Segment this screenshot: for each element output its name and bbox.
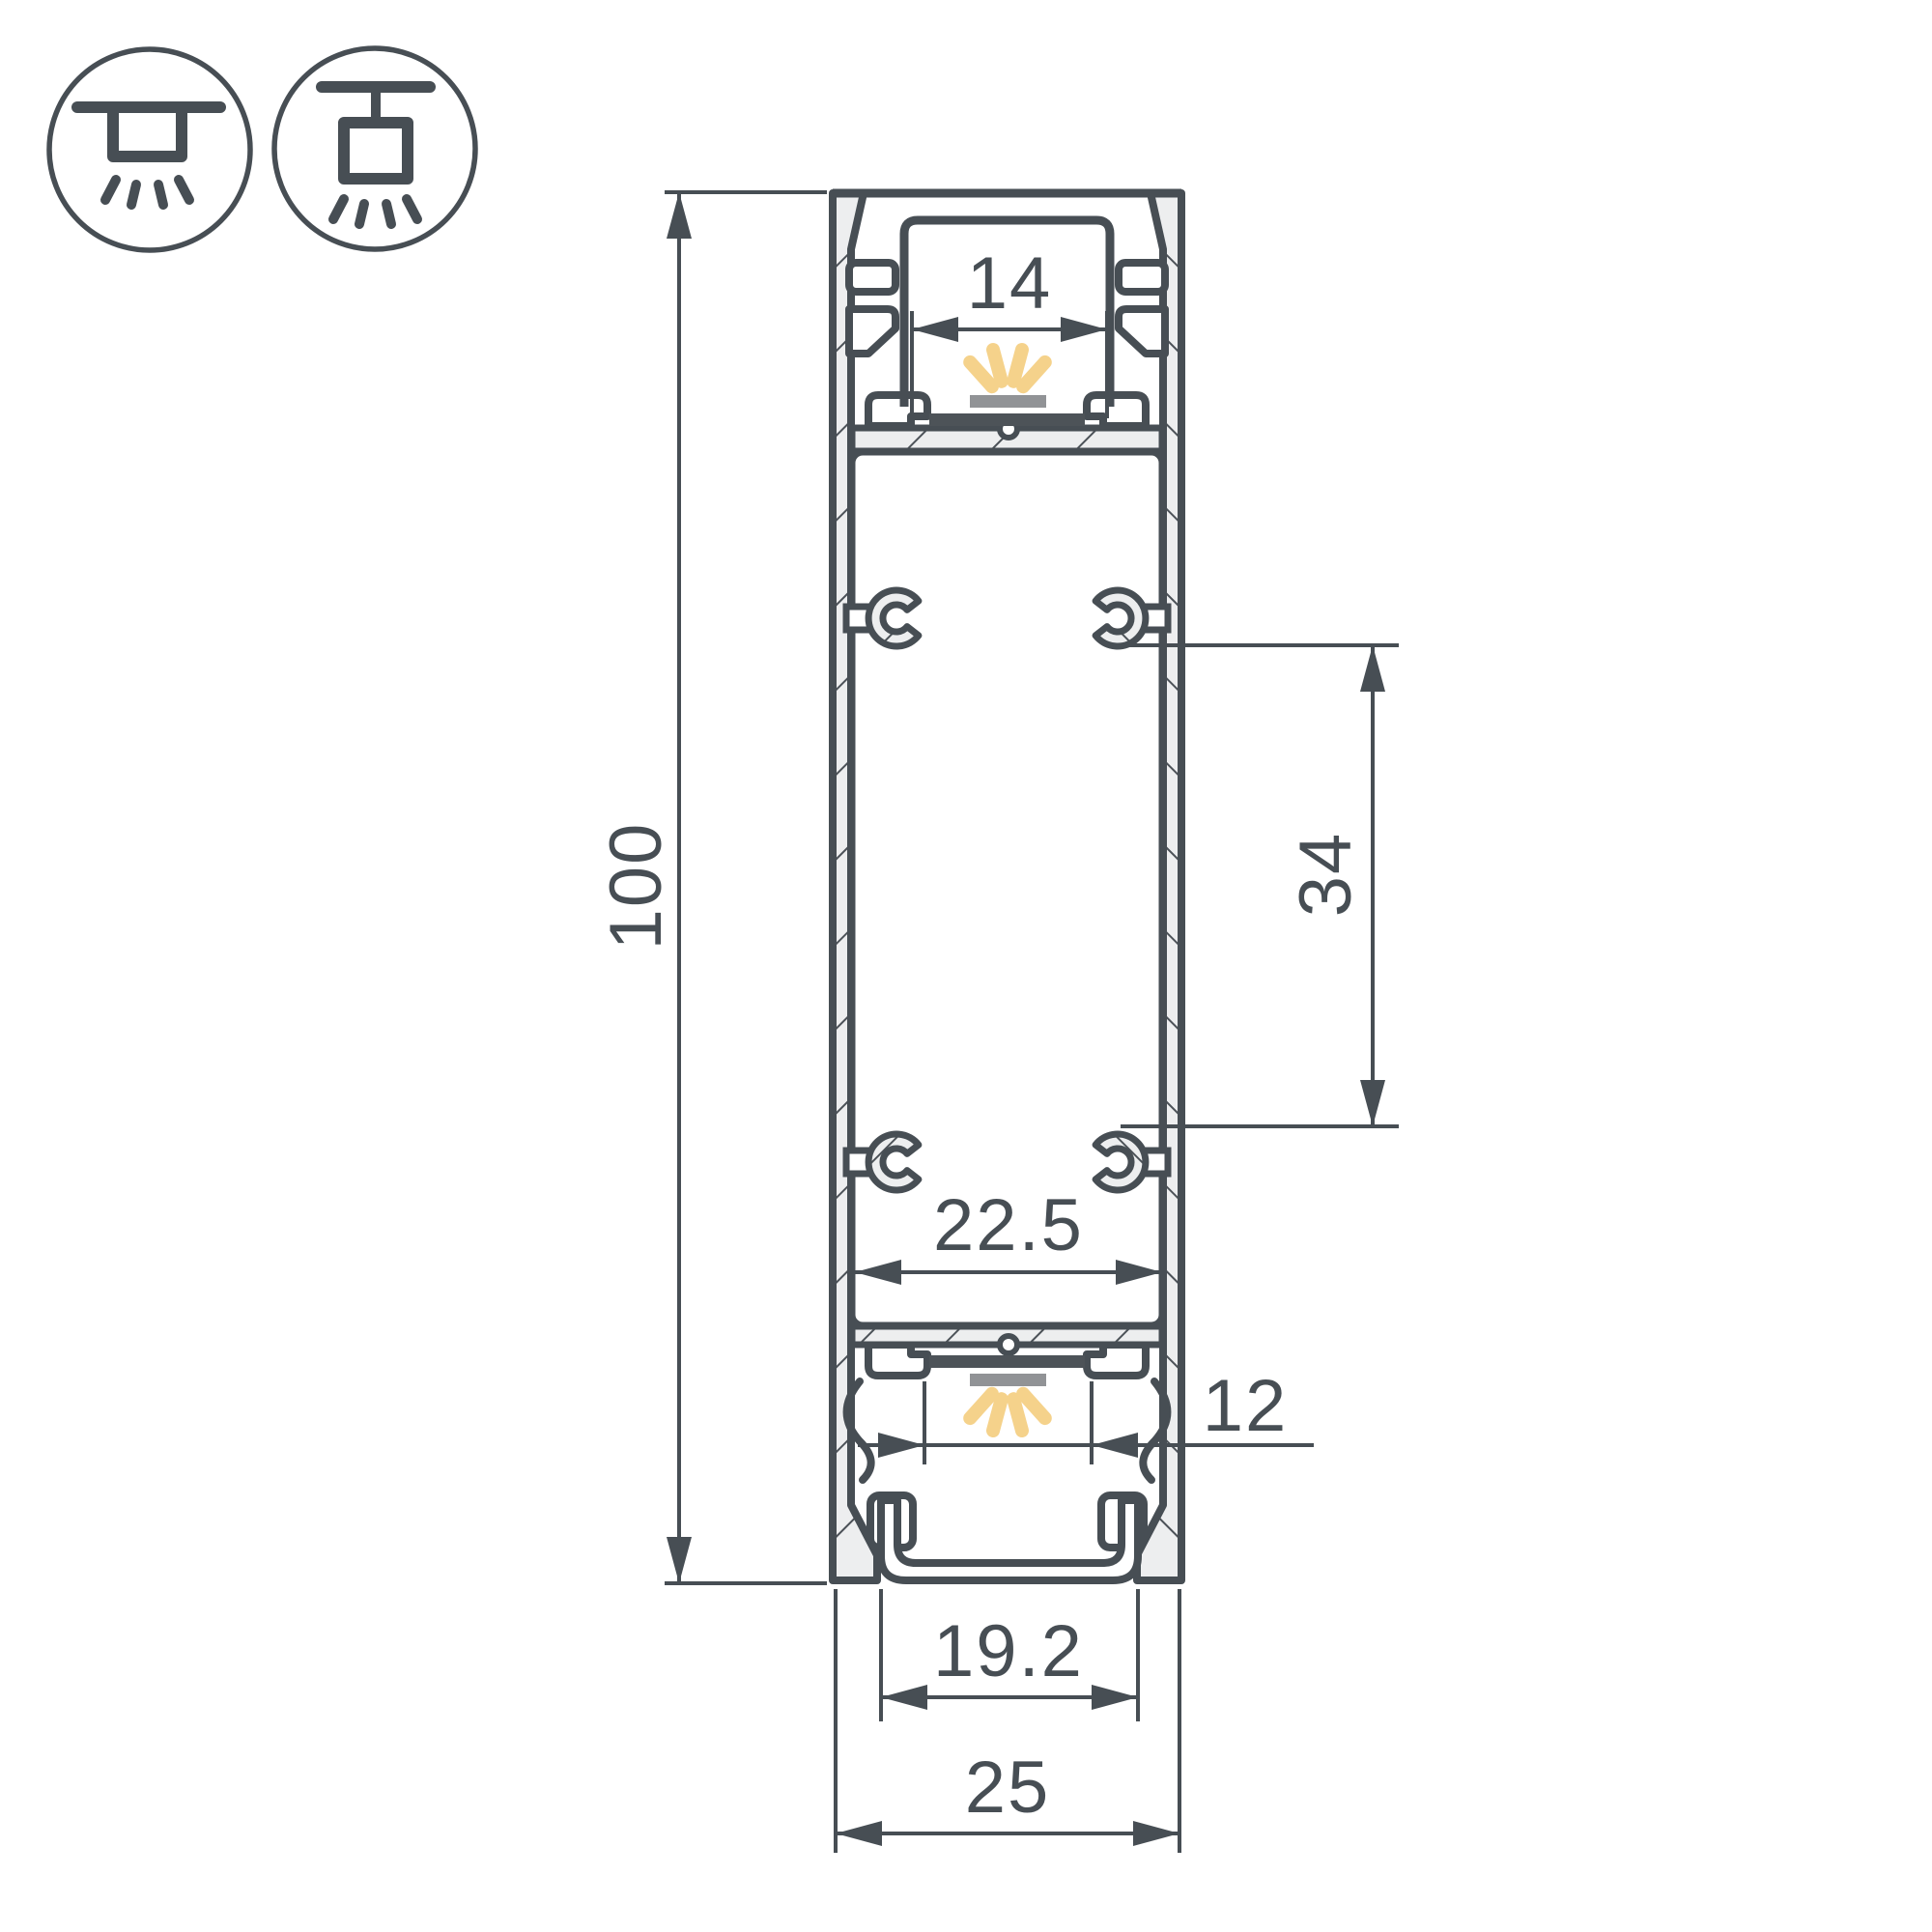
icon-circle bbox=[49, 49, 250, 250]
dim-label-inner-width: 22.5 bbox=[933, 1184, 1084, 1266]
profile-cross-section bbox=[833, 193, 1181, 1580]
dim-label-diffuser-width: 19.2 bbox=[933, 1610, 1084, 1692]
mount-options bbox=[49, 48, 475, 250]
dimension-total-height: 100 bbox=[595, 192, 827, 1583]
drawing-canvas: 100 14 34 22.5 bbox=[0, 0, 1932, 1932]
led-bar bbox=[970, 395, 1046, 408]
led-assembly-top bbox=[929, 350, 1085, 426]
light-rays-icon bbox=[333, 199, 417, 224]
led-assembly-bottom bbox=[929, 1355, 1085, 1431]
dim-label-boss-spacing: 34 bbox=[1285, 832, 1367, 918]
pcb-bar bbox=[929, 413, 1085, 426]
ceiling-surface-mount-icon bbox=[49, 49, 250, 250]
light-rays-icon bbox=[105, 180, 189, 205]
ceiling-pendant-mount-icon bbox=[274, 48, 475, 249]
profile-drawing: 100 14 34 22.5 bbox=[0, 0, 1932, 1932]
light-rays-down bbox=[970, 1394, 1045, 1431]
luminaire-body bbox=[344, 123, 408, 179]
luminaire-body bbox=[113, 107, 182, 156]
dim-label-bottom-window: 12 bbox=[1203, 1365, 1289, 1447]
dimension-top-window: 14 bbox=[912, 242, 1107, 418]
pcb-bar bbox=[929, 1355, 1085, 1368]
screw-pilot-bottom bbox=[1000, 1336, 1017, 1353]
dimension-bottom-window: 12 bbox=[858, 1365, 1314, 1464]
dim-label-total-width: 25 bbox=[965, 1747, 1051, 1829]
dim-label-total-height: 100 bbox=[595, 822, 677, 951]
led-bar bbox=[970, 1374, 1046, 1386]
dimension-diffuser-width: 19.2 bbox=[881, 1589, 1138, 1721]
dim-label-top-window: 14 bbox=[967, 242, 1053, 325]
light-rays-up bbox=[970, 350, 1045, 386]
icon-circle bbox=[274, 48, 475, 249]
